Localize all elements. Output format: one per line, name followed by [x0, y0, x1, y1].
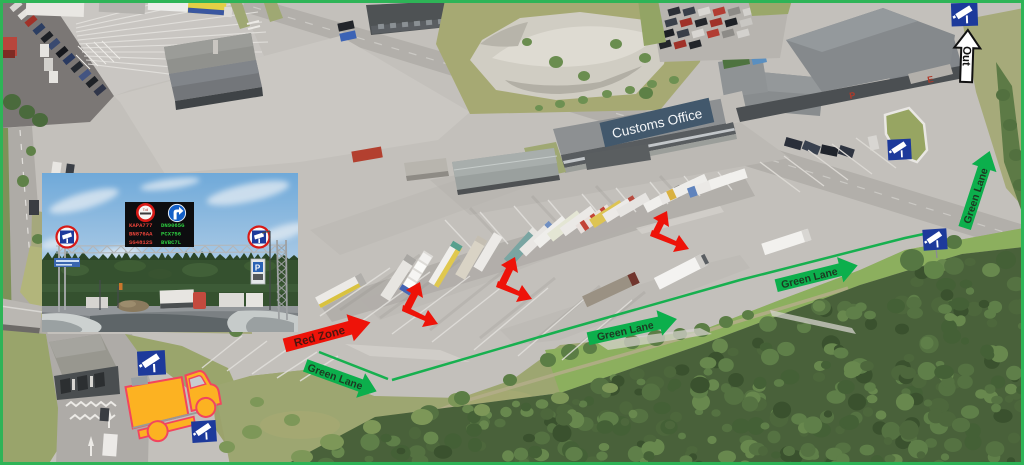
svg-text:SG4812S: SG4812S [129, 239, 153, 246]
svg-text:PCX756: PCX756 [161, 231, 182, 238]
svg-text:BVBC7L: BVBC7L [161, 239, 182, 246]
svg-text:Out: Out [960, 46, 973, 66]
svg-text:BN876AA: BN876AA [129, 231, 153, 238]
svg-text:P: P [255, 264, 261, 273]
svg-text:DN9065G: DN9065G [161, 222, 185, 229]
svg-text:KAPA777: KAPA777 [129, 222, 153, 229]
svg-text:Toll: Toll [143, 208, 149, 212]
